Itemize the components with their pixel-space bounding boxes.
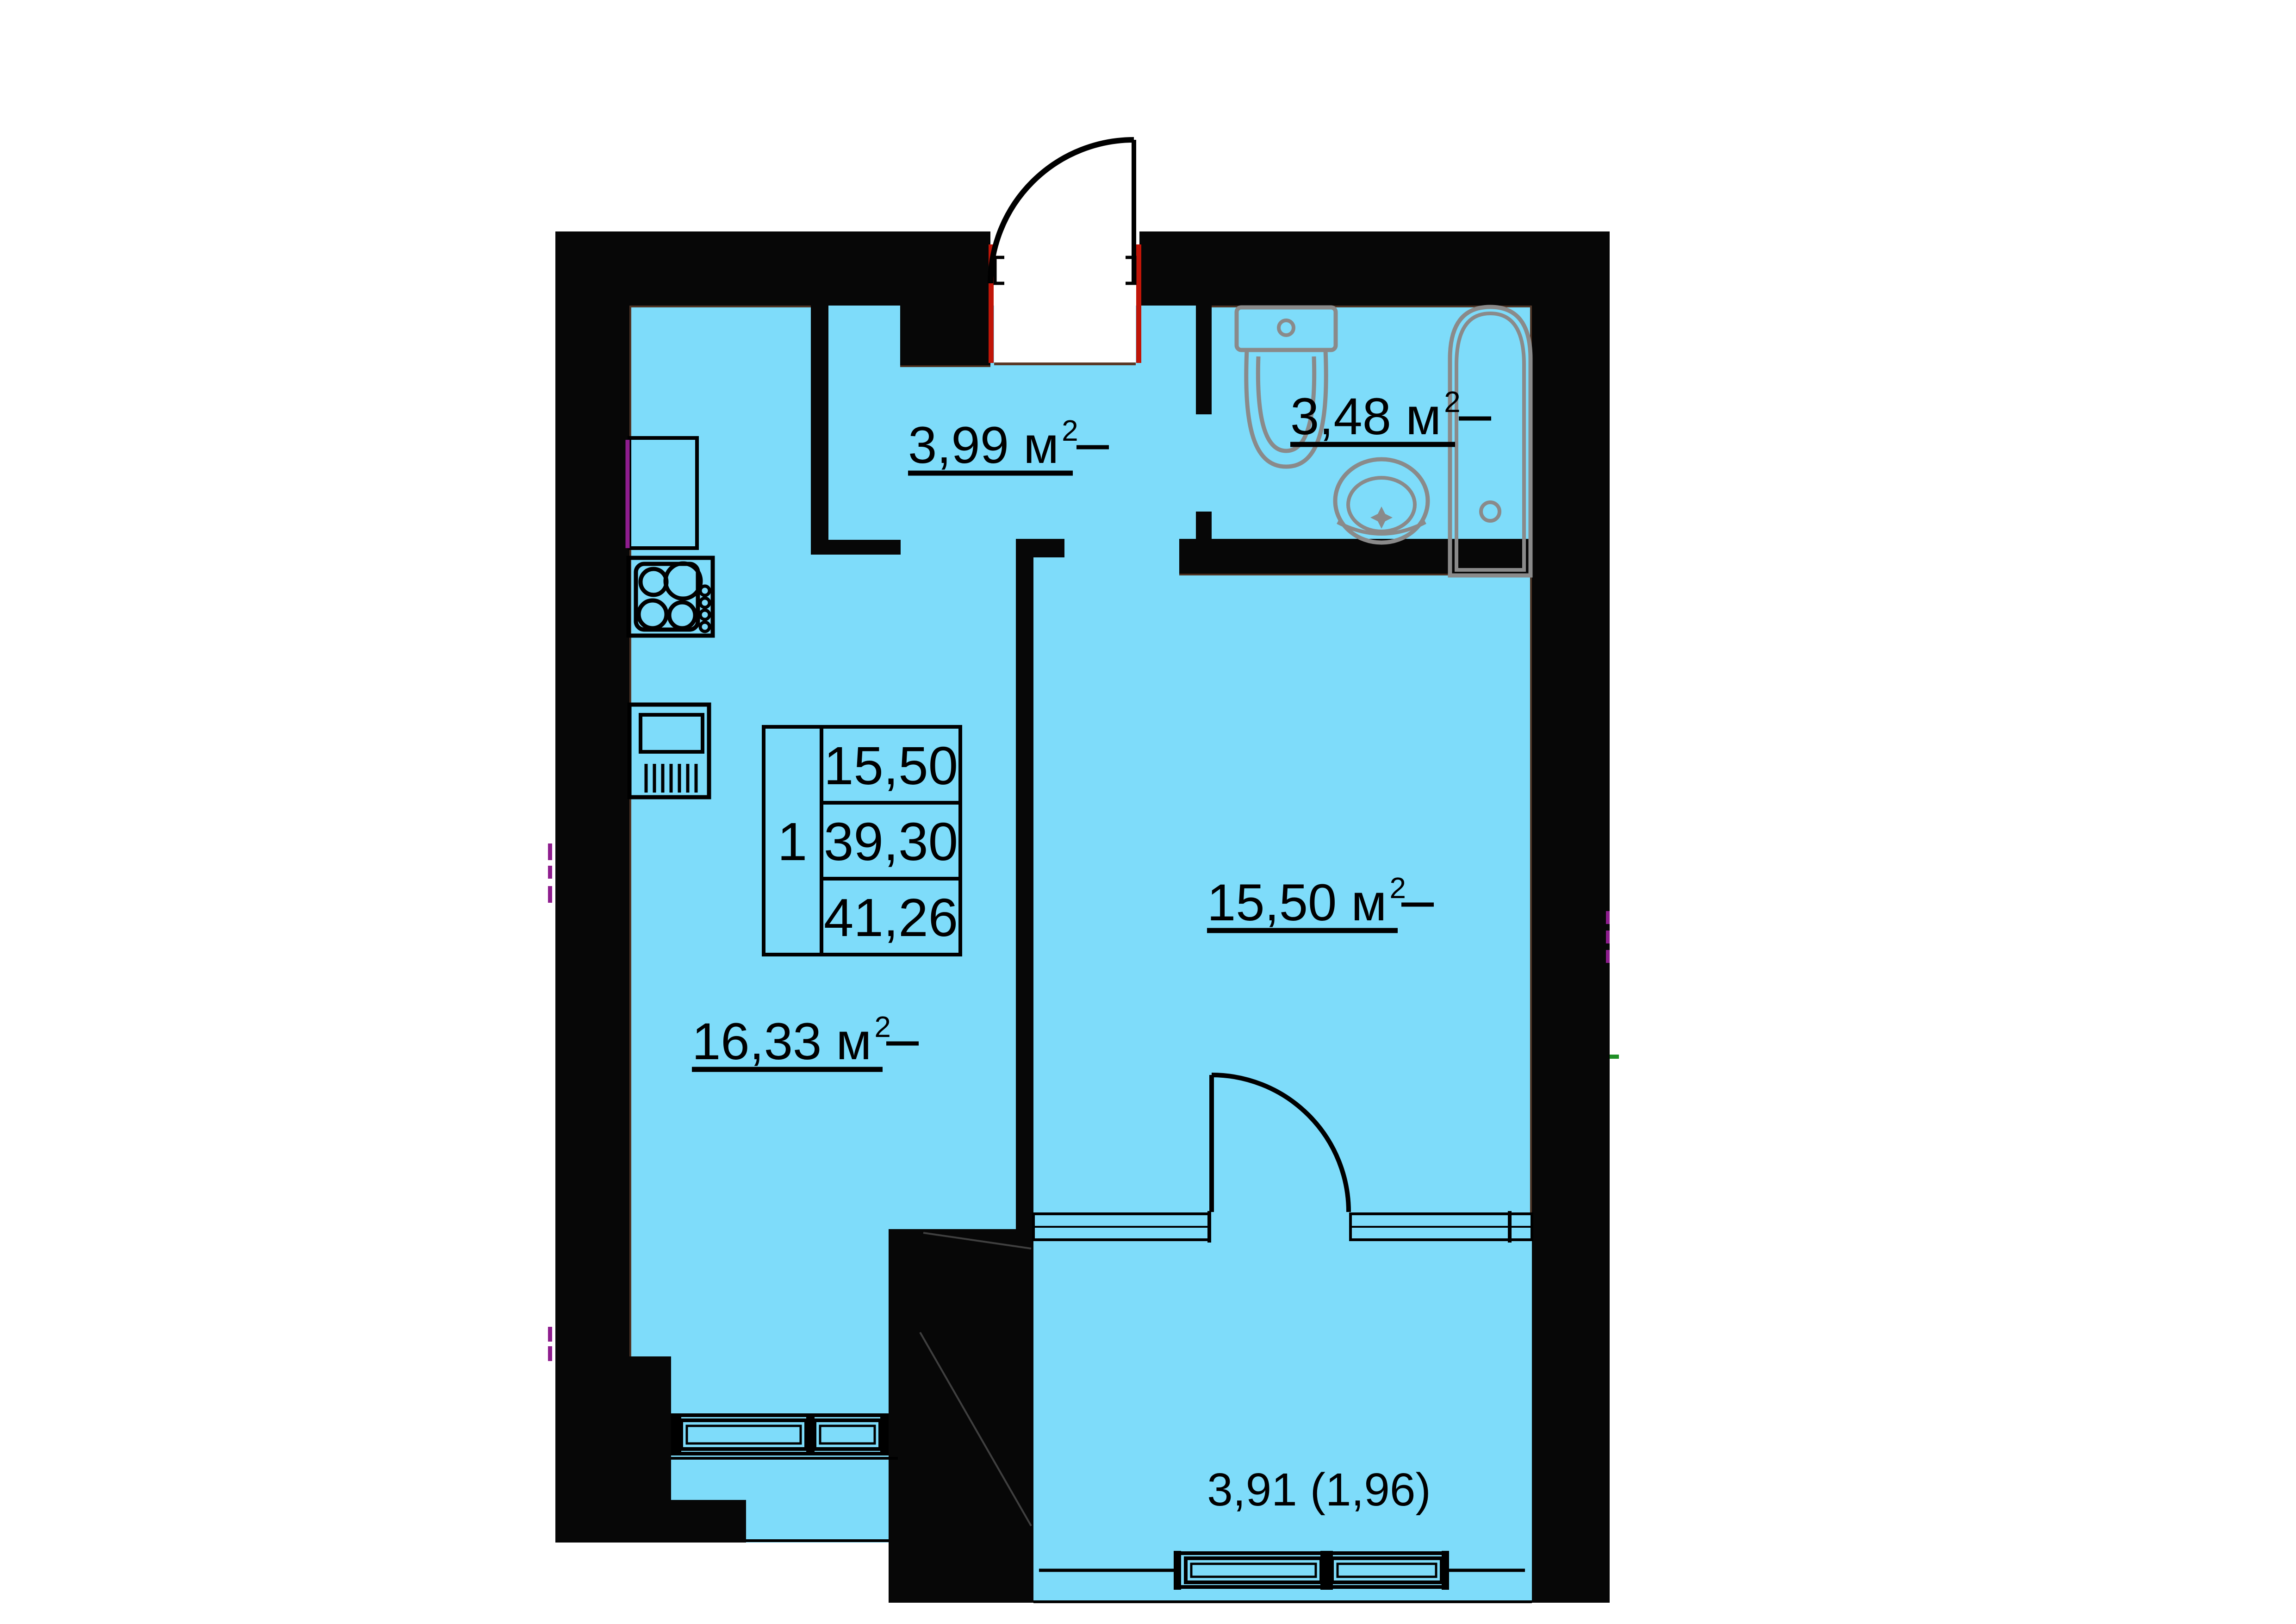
floor-plan: 1 15,50 39,30 41,26 3,99 м2 3,48 м2 15,5… xyxy=(0,0,2296,1624)
door-jamb-mark-right xyxy=(1136,244,1141,363)
kitchen-sink-drainer xyxy=(646,764,696,793)
window-cap xyxy=(1174,1551,1181,1590)
wall-bathroom-left-upper xyxy=(1196,306,1212,414)
window-cap xyxy=(1320,1551,1333,1590)
purple-mark xyxy=(1606,931,1610,943)
area-label-living: 15,50 м2 xyxy=(1207,871,1406,931)
purple-mark xyxy=(548,886,552,903)
stat-area: 39,30 xyxy=(824,812,958,872)
floor-kitchen-bay-apron xyxy=(746,1500,889,1543)
purple-mark xyxy=(548,843,552,860)
purple-mark xyxy=(548,1327,552,1342)
area-label-hallway: 3,99 м2 xyxy=(908,414,1078,474)
purple-mark xyxy=(1606,911,1610,924)
purple-mark xyxy=(1606,950,1610,963)
wall-bay-block xyxy=(671,1500,746,1543)
wall-left-bottom xyxy=(629,1356,671,1543)
wall-right xyxy=(1532,231,1610,1603)
wall-kitchen-hall-stub xyxy=(811,540,901,555)
wall-top-hall-deep xyxy=(900,306,990,366)
area-label-balcony: 3,91 (1,96) xyxy=(1207,1464,1431,1516)
window-cap xyxy=(880,1417,889,1454)
wall-shaft-block xyxy=(889,1229,1033,1603)
window-cap xyxy=(671,1417,681,1454)
area-label-bathroom: 3,48 м2 xyxy=(1290,385,1461,445)
stat-living-area: 15,50 xyxy=(824,736,958,796)
green-mark xyxy=(1610,1055,1619,1059)
window-cap xyxy=(1442,1551,1449,1590)
window-cap xyxy=(806,1417,815,1454)
stat-rooms-count: 1 xyxy=(778,812,808,872)
purple-mark xyxy=(548,866,552,879)
wall-bathroom-left-lower xyxy=(1196,512,1212,539)
wall-kitchen-living xyxy=(1016,539,1033,1241)
floor-balcony xyxy=(1033,1214,1532,1603)
wall-left xyxy=(555,231,629,1543)
stat-total-area: 41,26 xyxy=(824,887,958,948)
wall-kitchen-hall xyxy=(811,306,828,555)
area-label-kitchen: 16,33 м2 xyxy=(692,1010,891,1070)
purple-mark xyxy=(548,1346,552,1361)
entrance-niche xyxy=(994,231,1136,365)
